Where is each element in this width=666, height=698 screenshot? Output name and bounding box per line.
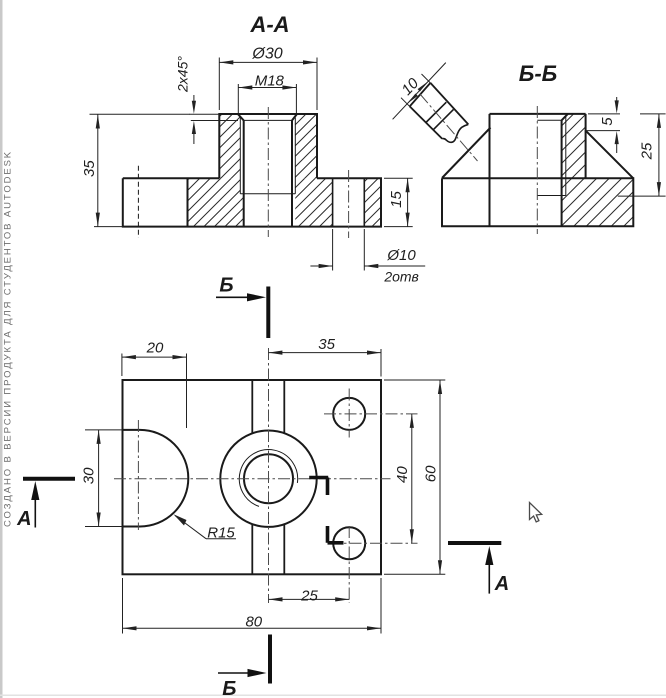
svg-text:5: 5 — [599, 117, 616, 126]
svg-text:А: А — [16, 508, 31, 530]
svg-text:60: 60 — [423, 465, 440, 482]
svg-text:Б-Б: Б-Б — [519, 61, 557, 86]
svg-text:2x45°: 2x45° — [175, 56, 191, 93]
svg-text:25: 25 — [639, 142, 656, 160]
svg-text:СОЗДАНО В ВЕРСИИ ПРОДУКТА ДЛЯ: СОЗДАНО В ВЕРСИИ ПРОДУКТА ДЛЯ СТУДЕНТОВ … — [3, 150, 14, 527]
svg-text:R15: R15 — [207, 525, 235, 542]
svg-text:Ø10: Ø10 — [386, 247, 416, 264]
svg-text:2отв: 2отв — [383, 269, 419, 285]
svg-text:30: 30 — [81, 467, 98, 484]
svg-text:Б: Б — [219, 275, 233, 297]
svg-text:80: 80 — [245, 614, 262, 631]
svg-text:35: 35 — [81, 160, 98, 177]
svg-text:А-А: А-А — [249, 12, 289, 37]
svg-text:35: 35 — [318, 336, 335, 353]
svg-text:Б: Б — [222, 678, 236, 698]
svg-text:15: 15 — [388, 191, 405, 208]
svg-text:20: 20 — [146, 340, 164, 357]
svg-text:M18: M18 — [255, 73, 285, 90]
svg-text:Ø30: Ø30 — [251, 46, 282, 63]
svg-text:25: 25 — [300, 588, 318, 605]
svg-text:40: 40 — [394, 466, 411, 483]
svg-text:А: А — [494, 573, 509, 595]
